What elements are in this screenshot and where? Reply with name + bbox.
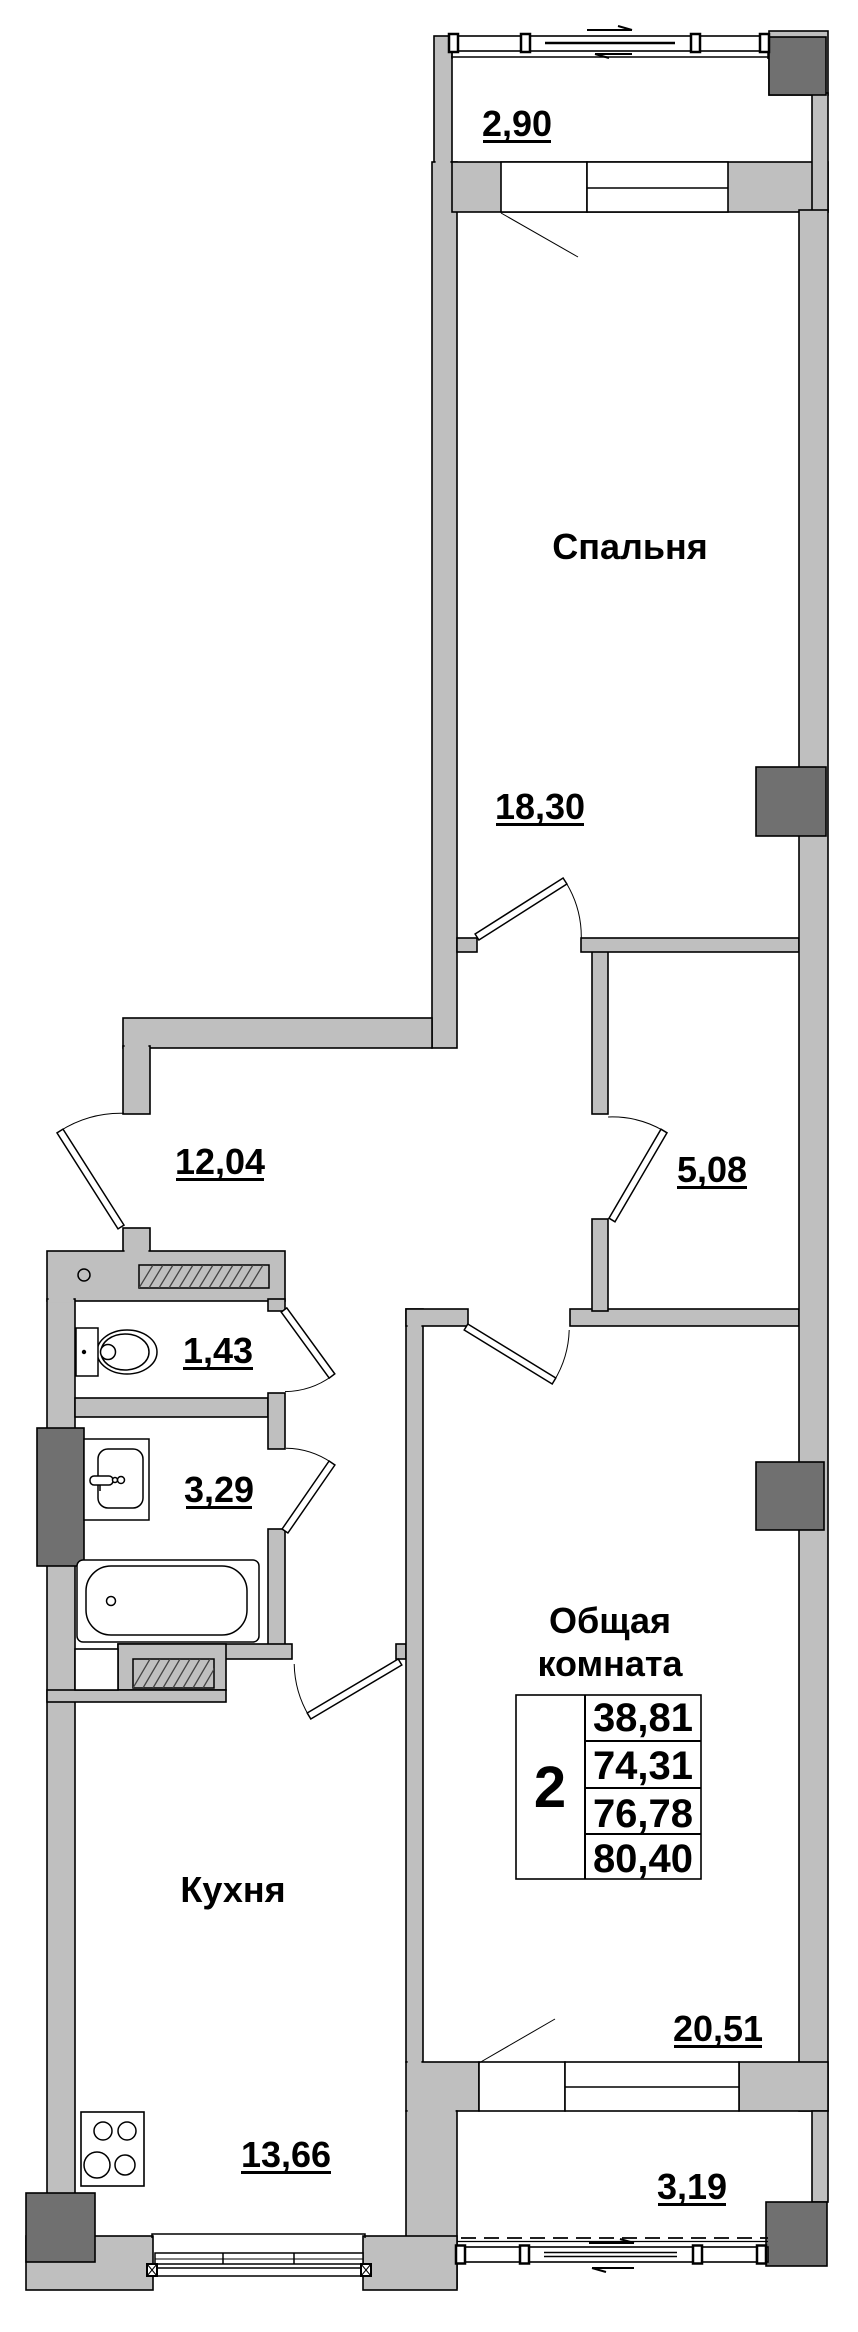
svg-text:Кухня: Кухня bbox=[180, 1869, 285, 1910]
svg-text:3,19: 3,19 bbox=[657, 2166, 727, 2207]
svg-text:Общая: Общая bbox=[549, 1600, 671, 1641]
svg-text:80,40: 80,40 bbox=[593, 1837, 693, 1881]
svg-text:комната: комната bbox=[537, 1643, 683, 1684]
svg-text:5,08: 5,08 bbox=[677, 1149, 747, 1190]
svg-text:12,04: 12,04 bbox=[175, 1141, 265, 1182]
svg-text:76,78: 76,78 bbox=[593, 1792, 693, 1836]
svg-text:2,90: 2,90 bbox=[482, 103, 552, 144]
svg-text:74,31: 74,31 bbox=[593, 1744, 693, 1788]
svg-text:13,66: 13,66 bbox=[241, 2134, 331, 2175]
svg-text:Спальня: Спальня bbox=[552, 526, 708, 567]
svg-text:1,43: 1,43 bbox=[183, 1330, 253, 1371]
svg-text:20,51: 20,51 bbox=[673, 2008, 763, 2049]
svg-text:18,30: 18,30 bbox=[495, 786, 585, 827]
svg-text:3,29: 3,29 bbox=[184, 1469, 254, 1510]
svg-text:38,81: 38,81 bbox=[593, 1696, 693, 1740]
svg-text:2: 2 bbox=[534, 1755, 566, 1820]
